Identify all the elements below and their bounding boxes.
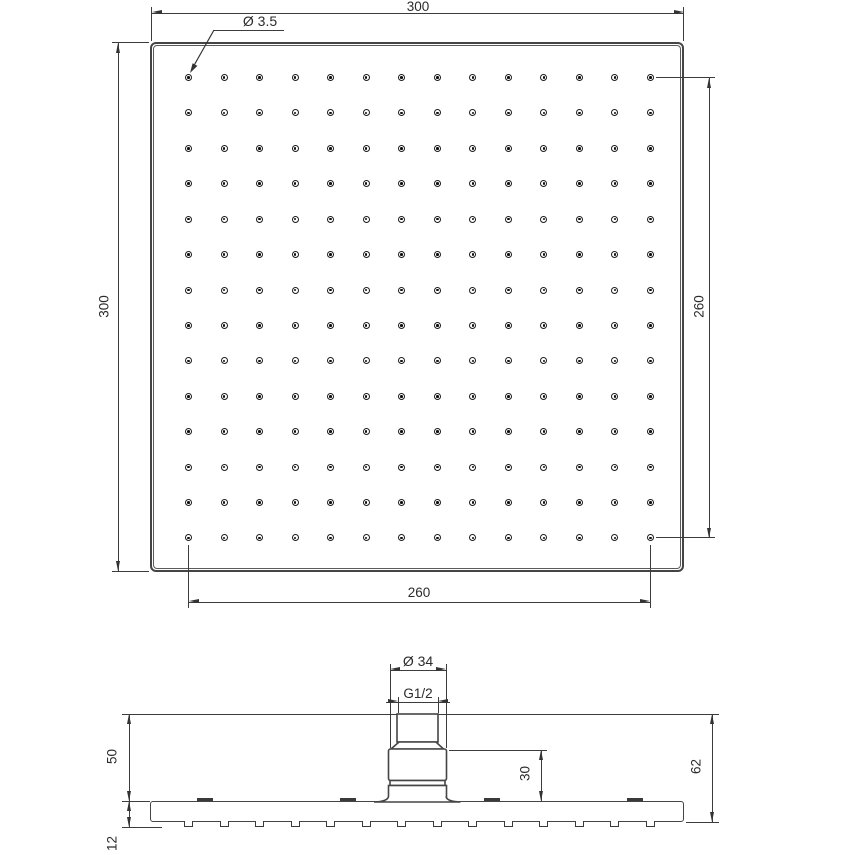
nozzle-hole [292, 74, 299, 81]
nozzle-hole [398, 393, 405, 400]
dimension-label-bottom-hole-span: 260 [399, 586, 439, 599]
nozzle-hole [185, 145, 192, 152]
nozzle-hole [434, 393, 441, 400]
dimension-label-top-width: 300 [398, 0, 438, 13]
nozzle-hole [505, 322, 512, 329]
nozzle-hole [576, 464, 583, 471]
nozzle-hole [576, 393, 583, 400]
nozzle-hole [221, 499, 228, 506]
nozzle-hole [363, 180, 370, 187]
nozzle-hole [256, 393, 263, 400]
nozzle-hole [363, 428, 370, 435]
nozzle [291, 821, 300, 827]
nozzle [610, 821, 619, 827]
nozzle-hole [647, 322, 654, 329]
nozzle [539, 821, 548, 827]
nozzle-hole [221, 145, 228, 152]
nozzle-hole [185, 499, 192, 506]
mount-tab [627, 798, 643, 801]
dimension-label-left-height: 300 [98, 287, 111, 327]
nozzle-hole [434, 180, 441, 187]
nozzle-hole [576, 145, 583, 152]
dimension-label-connector-height: 50 [106, 737, 119, 777]
nozzle-hole [576, 216, 583, 223]
nozzle-hole [576, 287, 583, 294]
dimension-label-thread: G1/2 [394, 687, 442, 700]
plate-profile [150, 801, 684, 822]
nozzle-hole [647, 499, 654, 506]
nozzle-hole [434, 74, 441, 81]
dimension-label-right-hole-span: 260 [693, 287, 706, 327]
nozzle-hole [505, 464, 512, 471]
nozzle-hole [221, 251, 228, 258]
mount-tab [340, 798, 356, 801]
mount-tab [484, 798, 500, 801]
nozzle-hole [434, 322, 441, 329]
nozzle-hole [221, 357, 228, 364]
nozzle-hole [363, 499, 370, 506]
nozzle-hole [398, 464, 405, 471]
nozzle [255, 821, 264, 827]
nozzle-hole [469, 287, 476, 294]
nozzle-hole [327, 464, 334, 471]
nozzle-hole [398, 216, 405, 223]
mount-tab [197, 798, 213, 801]
dimension-label-plate-thickness: 12 [106, 824, 119, 855]
nozzle-hole [256, 216, 263, 223]
dimension-label-body-height: 30 [519, 754, 532, 794]
nozzle [504, 821, 513, 827]
nozzle-hole [185, 464, 192, 471]
nozzle-hole [221, 216, 228, 223]
dimension-label-connector-diameter: Ø 34 [394, 655, 442, 668]
nozzle-hole [469, 464, 476, 471]
nozzle-hole [576, 499, 583, 506]
nozzle-hole [434, 145, 441, 152]
nozzle-hole [434, 499, 441, 506]
nozzle-hole [292, 464, 299, 471]
nozzle-hole [647, 216, 654, 223]
nozzle-hole [256, 322, 263, 329]
nozzle-hole [327, 145, 334, 152]
nozzle [397, 821, 406, 827]
nozzle-hole [363, 464, 370, 471]
nozzle-hole [505, 145, 512, 152]
leader-line [180, 26, 224, 78]
nozzle-hole [576, 251, 583, 258]
nozzle-hole [292, 428, 299, 435]
nozzle-hole [221, 287, 228, 294]
connector-profile [368, 712, 466, 803]
nozzle-hole [292, 322, 299, 329]
nozzle-hole [434, 428, 441, 435]
nozzle-hole [434, 287, 441, 294]
nozzle-hole [256, 287, 263, 294]
nozzle-hole [221, 534, 228, 541]
nozzle-hole [327, 287, 334, 294]
nozzle-hole [292, 251, 299, 258]
nozzle [468, 821, 477, 827]
nozzle-hole [647, 74, 654, 81]
nozzle-hole [221, 180, 228, 187]
nozzle-hole [469, 216, 476, 223]
nozzle-hole [505, 287, 512, 294]
nozzle-hole [505, 216, 512, 223]
nozzle-hole [292, 216, 299, 223]
nozzle-hole [363, 145, 370, 152]
nozzle-hole [363, 322, 370, 329]
nozzle-hole [434, 216, 441, 223]
nozzle-hole [647, 464, 654, 471]
nozzle-hole [434, 251, 441, 258]
nozzle-hole [221, 464, 228, 471]
hole-diameter-label: Ø 3.5 [232, 15, 288, 28]
nozzle [362, 821, 371, 827]
nozzle-hole [576, 74, 583, 81]
nozzle-hole [185, 393, 192, 400]
nozzle-hole [505, 499, 512, 506]
nozzle [646, 821, 655, 827]
nozzle [220, 821, 229, 827]
nozzle-hole [540, 287, 547, 294]
nozzle-hole [327, 393, 334, 400]
nozzle-hole [647, 287, 654, 294]
nozzle-hole [221, 393, 228, 400]
nozzle [575, 821, 584, 827]
nozzle [433, 821, 442, 827]
nozzle-hole [363, 251, 370, 258]
nozzle-hole [292, 180, 299, 187]
technical-drawing: 300 Ø 3.5 300 260 [0, 0, 855, 855]
plate-edge-line [153, 45, 681, 569]
nozzle-hole [185, 287, 192, 294]
nozzle-hole [327, 216, 334, 223]
nozzle-hole [256, 145, 263, 152]
nozzle-hole [363, 393, 370, 400]
nozzle-hole [221, 428, 228, 435]
nozzle-hole [647, 393, 654, 400]
nozzle-hole [398, 287, 405, 294]
nozzle-hole [505, 428, 512, 435]
nozzle-hole [363, 287, 370, 294]
nozzle-hole [647, 145, 654, 152]
dimension-label-total-height: 62 [690, 747, 703, 787]
nozzle-hole [540, 464, 547, 471]
nozzle-hole [221, 322, 228, 329]
nozzle-hole [576, 322, 583, 329]
nozzle-hole [185, 216, 192, 223]
nozzle-hole [292, 287, 299, 294]
nozzle-hole [292, 393, 299, 400]
nozzle-hole [292, 357, 299, 364]
nozzle-hole [292, 499, 299, 506]
nozzle-hole [434, 464, 441, 471]
nozzle-hole [363, 74, 370, 81]
nozzle [326, 821, 335, 827]
nozzle-hole [256, 464, 263, 471]
nozzle-hole [363, 216, 370, 223]
nozzle-hole [505, 251, 512, 258]
nozzle-hole [292, 145, 299, 152]
nozzle-hole [221, 109, 228, 116]
nozzle-hole [505, 393, 512, 400]
nozzle-hole [185, 322, 192, 329]
nozzle [184, 821, 193, 827]
nozzle-hole [505, 74, 512, 81]
